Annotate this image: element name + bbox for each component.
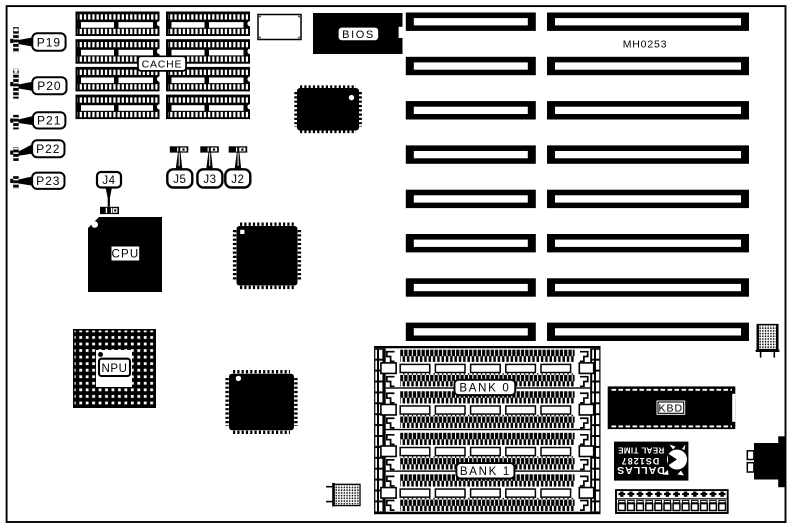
svg-text:MH0253: MH0253 <box>623 39 668 51</box>
svg-text:P22: P22 <box>36 142 60 156</box>
svg-text:CPU: CPU <box>111 249 139 261</box>
svg-text:J2: J2 <box>231 174 244 186</box>
svg-text:P23: P23 <box>36 174 60 188</box>
svg-text:J4: J4 <box>102 175 115 187</box>
svg-text:P20: P20 <box>37 79 61 93</box>
svg-text:CACHE: CACHE <box>142 58 183 70</box>
svg-text:NPU: NPU <box>101 363 127 375</box>
svg-text:KBD: KBD <box>659 402 684 414</box>
svg-text:BIOS: BIOS <box>342 29 375 41</box>
svg-text:REAL TIME: REAL TIME <box>617 445 664 454</box>
svg-text:J5: J5 <box>173 174 186 186</box>
svg-text:BANK 0: BANK 0 <box>459 383 510 395</box>
svg-text:P19: P19 <box>37 35 61 49</box>
svg-text:BANK 1: BANK 1 <box>460 466 511 478</box>
svg-text:J3: J3 <box>203 174 216 186</box>
svg-text:DALLAS: DALLAS <box>616 464 665 476</box>
svg-text:P21: P21 <box>37 114 61 128</box>
